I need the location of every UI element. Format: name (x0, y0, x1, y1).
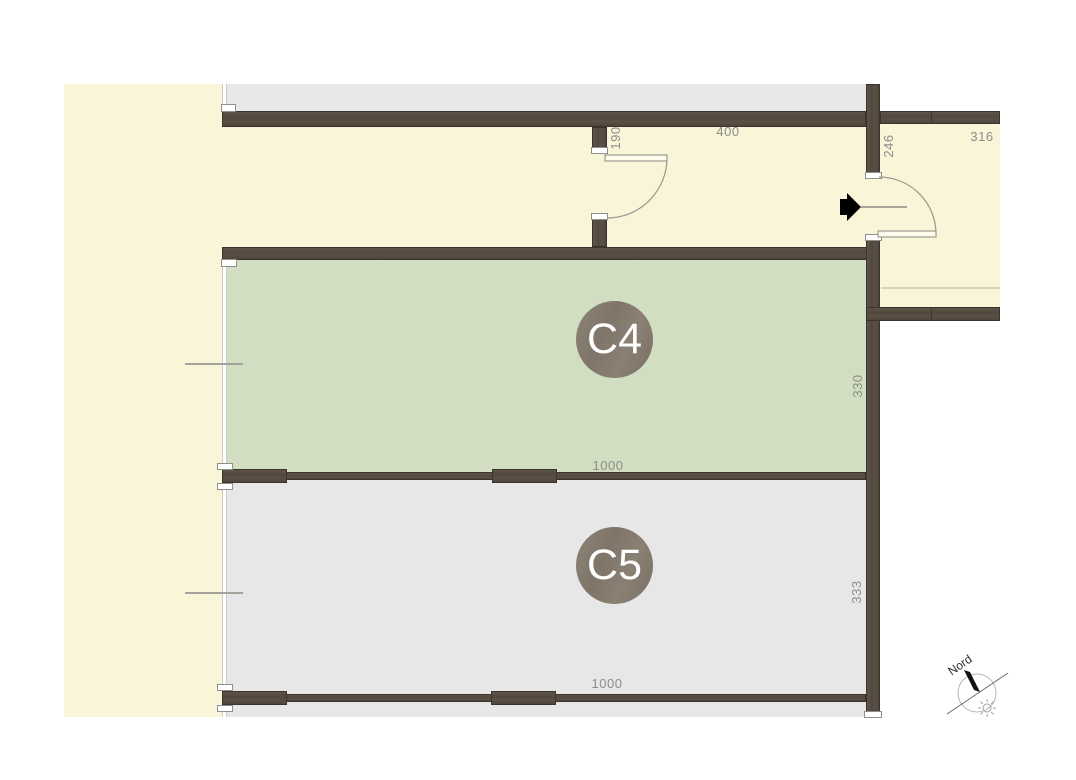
dimension-333-c5: 333 (850, 562, 864, 622)
floor-area-top-room-cut (226, 84, 867, 111)
wall-cap (591, 213, 608, 220)
wall-cap (217, 684, 233, 691)
room-label-c5: C5 (587, 541, 642, 590)
wall-cap (865, 234, 882, 241)
partition-c5-bottom-post-1 (222, 691, 287, 705)
dimension-190: 190 (609, 108, 623, 168)
compass-needle (964, 670, 980, 692)
wall-cap (591, 147, 608, 154)
wall-top (222, 111, 866, 127)
wall-cap (217, 463, 233, 470)
floor-area-left-strip (64, 84, 223, 717)
room-badge-c5[interactable]: C5 (576, 527, 653, 604)
floor-area-entrance-room (880, 124, 1000, 308)
wall-cap (221, 259, 237, 267)
wall-cap (217, 483, 233, 490)
partition-c4-c5-post-2 (492, 469, 557, 483)
dimension-1000-c4: 1000 (578, 459, 638, 473)
dimension-1000-c5: 1000 (577, 677, 637, 691)
wall-right-vertical-upper (866, 84, 880, 179)
wall-cap (217, 705, 233, 712)
room-c4-floor (226, 250, 867, 480)
room-c5-floor (226, 480, 867, 717)
dimension-316: 316 (952, 130, 1012, 144)
wall-joint-bottom (931, 307, 932, 321)
dimension-400: 400 (698, 125, 758, 139)
dimension-330-c4: 330 (851, 356, 865, 416)
wall-stub-door1-lower (592, 219, 607, 247)
wall-joint-top (931, 111, 932, 124)
sun-icon (978, 699, 996, 717)
compass: Nord (945, 652, 1008, 717)
compass-axis-line (947, 673, 1008, 714)
partition-c4-c5-post-1 (222, 469, 287, 483)
wall-c4-top (222, 247, 880, 260)
partition-c5-bottom-post-2 (491, 691, 556, 705)
compass-label: Nord (945, 652, 974, 678)
wall-bottom-right (866, 307, 1000, 321)
door-opening-gap (866, 179, 880, 235)
room-badge-c4[interactable]: C4 (576, 301, 653, 378)
compass-circle (958, 674, 996, 712)
room-label-c4: C4 (587, 315, 642, 364)
dimension-246: 246 (882, 116, 896, 176)
floor-area-corridor (222, 127, 866, 247)
wall-cap (865, 172, 882, 179)
wall-top-right (880, 111, 1000, 124)
wall-cap (221, 104, 236, 112)
wall-cap (864, 711, 882, 718)
floor-plan: 400 316 190 246 330 333 1000 1000 C4 C5 (0, 0, 1076, 780)
